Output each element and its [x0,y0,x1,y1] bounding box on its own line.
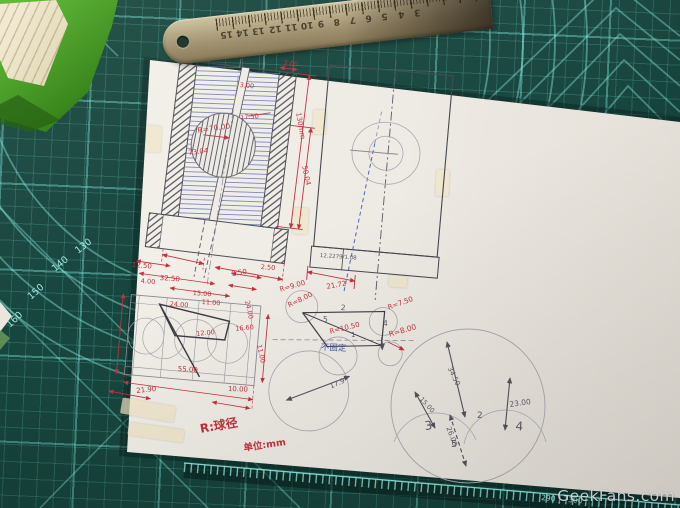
plan-view-sketch [106,256,284,411]
dim-label: 24.00 [170,301,189,309]
front-outline [314,65,453,257]
point-label: 4 [515,420,523,433]
base-end-left [145,213,163,248]
dim-label: 2.00 [283,60,298,68]
point-label: 5 [451,440,457,450]
front-view-sketch [306,56,466,306]
dim-label: 12.50 [132,262,152,270]
point-label: 4 [383,320,388,328]
mat-edge-label: 290 [541,493,556,503]
blue-dashed-line2 [375,111,382,143]
point-label: 3 [424,419,433,432]
point-label: 2 [477,412,483,421]
dim-label: 16.60 [235,324,254,332]
watermark: GeekFans.com [557,487,675,505]
dim-label: 4.00 [141,278,156,285]
dim-label: 17.50 [240,113,259,121]
dim-label: 10.00 [228,386,248,394]
front-view-group [305,55,455,305]
dim-label: 3.00 [239,82,254,90]
right-detail-sketch [380,320,565,490]
red-leader [388,342,404,350]
dim-label: 2.50 [261,264,276,271]
dim-label: 12.00 [196,329,215,337]
dim-label: 15.00 [193,290,212,298]
center-cross [350,150,398,154]
point-label: 2 [340,304,345,312]
centerline [375,61,396,300]
dim-label: 55.00 [178,366,198,374]
point-label: 1 [351,332,355,339]
base-band [310,246,439,278]
point-label: 5 [323,316,328,324]
blue-note: 不固定 [321,344,347,353]
photo-scene: 130 140 150 160 290 300 [0,0,680,508]
dim-label: 11.00 [202,299,221,307]
dim-label: 32.50 [160,275,180,283]
pencil-circles [126,314,249,366]
